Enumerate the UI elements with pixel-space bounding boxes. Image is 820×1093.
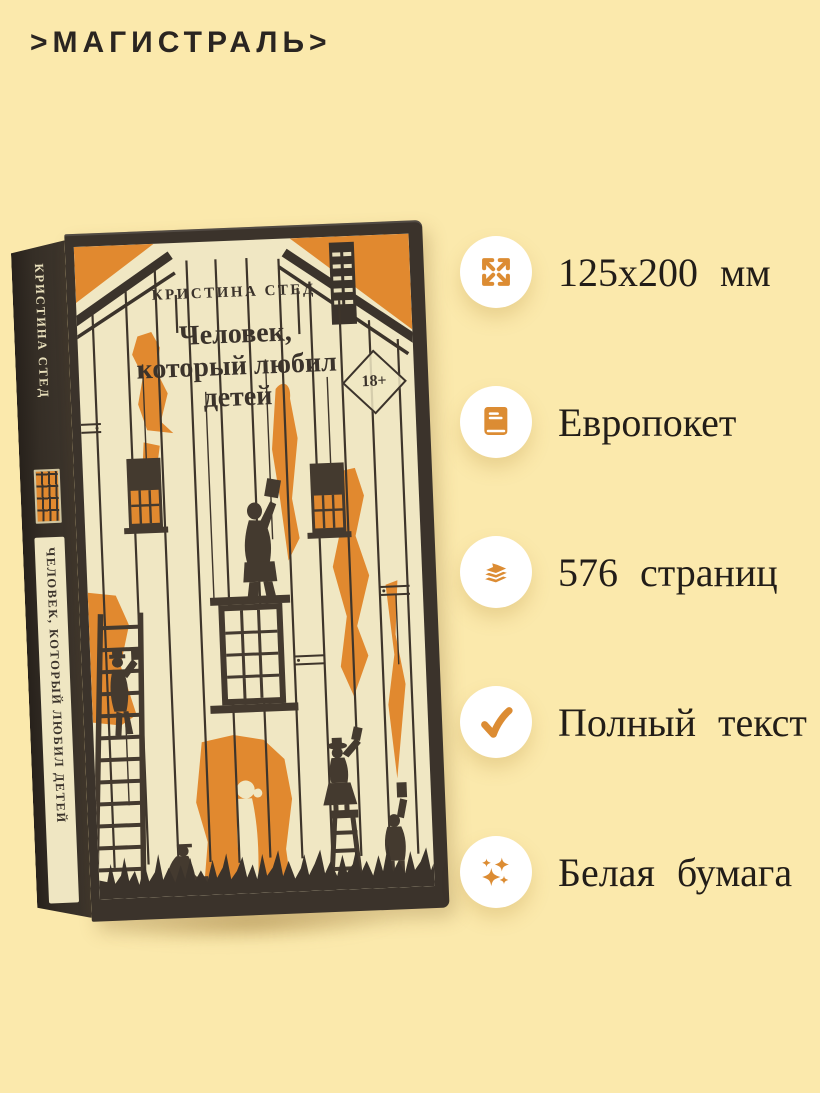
cover-illustration: КРИСТИНА СТЕД Человек, который любил дет… — [74, 234, 435, 900]
spine-window-icon — [34, 469, 62, 524]
expand-icon — [460, 236, 532, 308]
feature-label-size: 125x200 мм — [558, 249, 771, 296]
feature-row-format: Европокет — [460, 386, 807, 458]
feature-label-format: Европокет — [558, 399, 736, 446]
spine-title: ЧЕЛОВЕК, КОТОРЫЙ ЛЮБИЛ ДЕТЕЙ — [42, 547, 68, 824]
pages-icon — [460, 536, 532, 608]
book-icon — [460, 386, 532, 458]
cover-title: Человек, который любил детей — [77, 312, 397, 419]
feature-label-paper: Белая бумага — [558, 849, 792, 896]
feature-label-pages: 576 страниц — [558, 549, 778, 596]
feature-row-paper: Белая бумага — [460, 836, 807, 908]
feature-label-fulltext: Полный текст — [558, 699, 807, 746]
features-list: 125x200 мм Европокет 576 страниц Полный … — [460, 236, 807, 908]
age-badge-label: 18+ — [361, 373, 387, 392]
sparkles-icon — [460, 836, 532, 908]
spine-author: КРИСТИНА СТЕД — [31, 263, 51, 399]
spine-title-strip: ЧЕЛОВЕК, КОТОРЫЙ ЛЮБИЛ ДЕТЕЙ — [34, 537, 79, 904]
feature-row-fulltext: Полный текст — [460, 686, 807, 758]
feature-row-size: 125x200 мм — [460, 236, 807, 308]
publisher-logo: >МАГИСТРАЛЬ> — [30, 26, 332, 60]
feature-row-pages: 576 страниц — [460, 536, 807, 608]
book-mockup: КРИСТИНА СТЕД ЧЕЛОВЕК, КОТОРЫЙ ЛЮБИЛ ДЕТ… — [10, 220, 449, 928]
check-icon — [460, 686, 532, 758]
book-cover: КРИСТИНА СТЕД Человек, который любил дет… — [64, 220, 449, 922]
